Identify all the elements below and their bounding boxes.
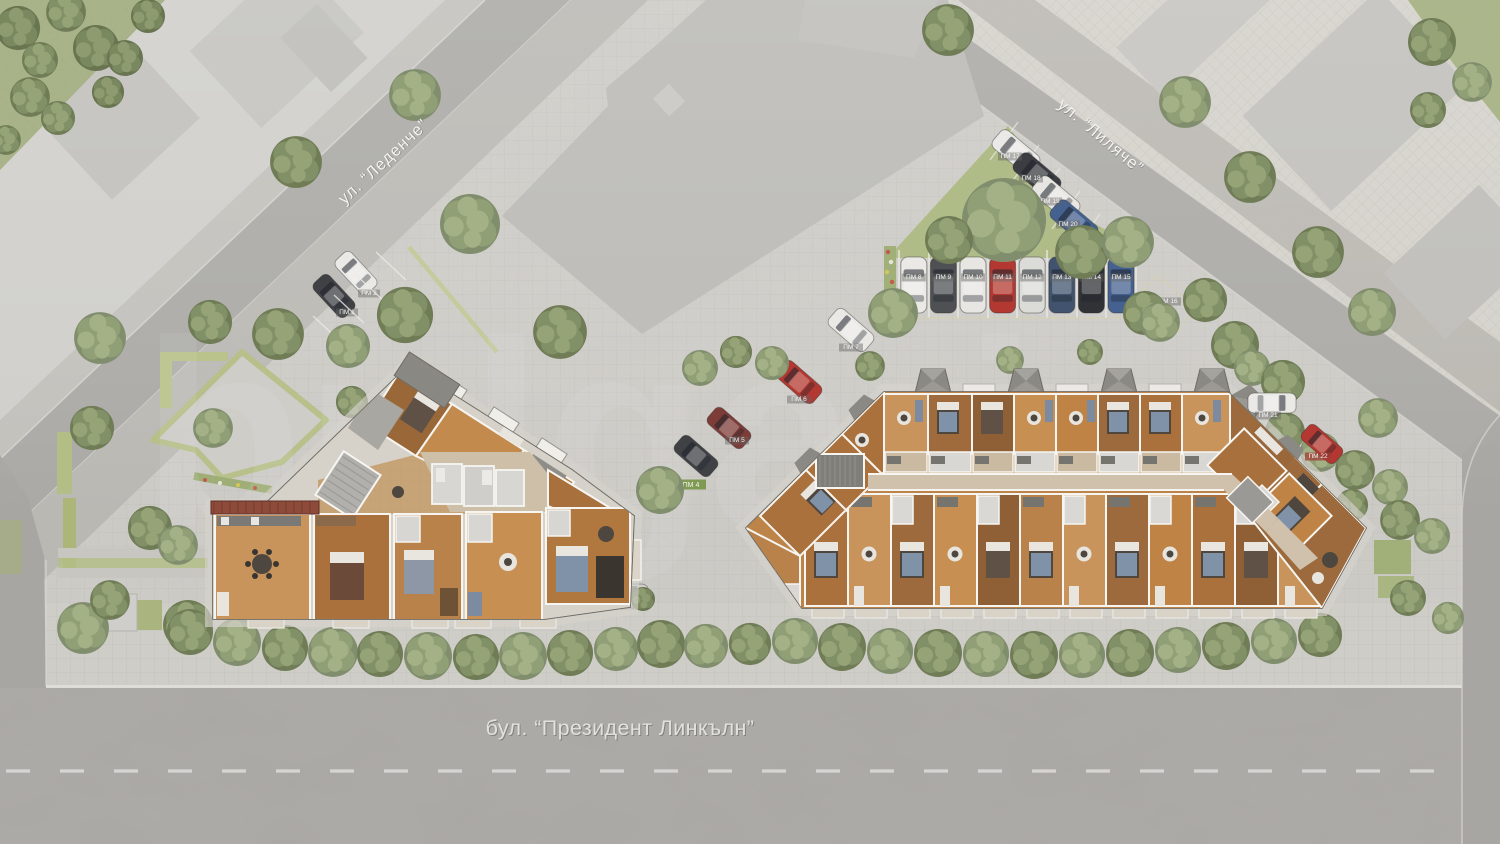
svg-text:ПМ 18: ПМ 18	[1021, 175, 1041, 182]
svg-text:бул. “Президент Линкълн”: бул. “Президент Линкълн”	[486, 716, 755, 740]
svg-text:ПМ 19: ПМ 19	[1040, 198, 1060, 205]
svg-text:ПМ 6: ПМ 6	[791, 396, 807, 403]
svg-text:ПМ 11: ПМ 11	[993, 274, 1012, 281]
svg-text:ПМ 10: ПМ 10	[963, 274, 983, 281]
svg-text:ПМ 21: ПМ 21	[1258, 412, 1278, 419]
svg-text:ПМ 4: ПМ 4	[683, 482, 700, 489]
svg-text:ПМ 9: ПМ 9	[936, 274, 952, 281]
svg-text:ПМ 7: ПМ 7	[843, 344, 859, 351]
svg-text:ПМ 12: ПМ 12	[1023, 274, 1043, 281]
svg-text:ПМ 15: ПМ 15	[1111, 274, 1131, 281]
svg-text:ПМ 22: ПМ 22	[1308, 453, 1328, 460]
svg-text:ПМ 2: ПМ 2	[361, 290, 377, 297]
svg-text:ПМ 5: ПМ 5	[729, 437, 745, 444]
svg-text:ПМ 8: ПМ 8	[906, 274, 922, 281]
svg-text:ПМ 17: ПМ 17	[1000, 153, 1020, 160]
